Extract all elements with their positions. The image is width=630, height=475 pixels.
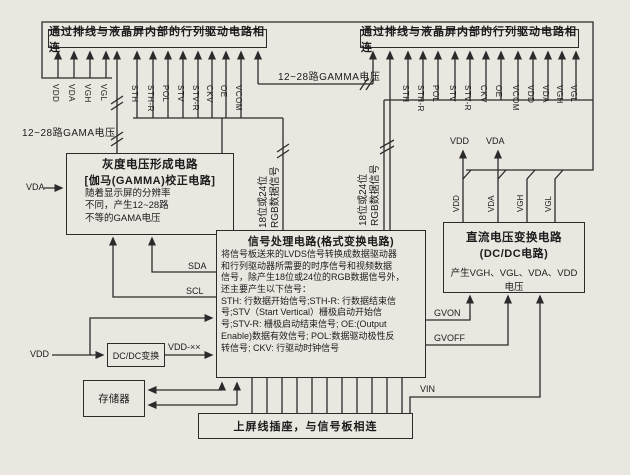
- dcdc-block: 直流电压变换电路 (DC/DC电路) 产生VGH、VGL、VDA、VDD电压: [443, 222, 585, 293]
- pin-label-stv: STV: [448, 85, 457, 102]
- dcdc-subtitle: (DC/DC电路): [448, 245, 580, 261]
- vdd-input-label: VDD: [30, 349, 49, 359]
- pin-label-vgh: VGH: [83, 84, 92, 103]
- pin-label-oe: OE: [219, 85, 228, 98]
- memory-block: 存储器: [83, 380, 145, 417]
- net-panel-socket: [252, 378, 402, 413]
- vdd-xx-label: VDD-××: [168, 342, 201, 352]
- vdd-branch-label: VDD: [450, 136, 469, 146]
- pin-label-sth: STH: [401, 85, 410, 103]
- pin-label-vcom: VCOM: [511, 85, 520, 111]
- pin-label-ckv: CKV: [479, 85, 488, 103]
- vin-label: VIN: [420, 384, 435, 394]
- pin-label-vdd: VDD: [526, 85, 535, 103]
- dcdc-out-label-vda: VDA: [487, 196, 496, 212]
- pin-label-vgl: VGL: [569, 85, 578, 103]
- gamma-voltage-block: 灰度电压形成电路 [伽马(GAMMA)校正电路] 随着显示屏的分辨率 不同，产生…: [66, 153, 234, 235]
- dcdc-out-label-vdd: VDD: [452, 195, 461, 212]
- dcdc-small-label: DC/DC变换: [113, 349, 160, 362]
- signal-body-line: 号;STV-R: 栅极启动结束信号; OE:(Output: [221, 319, 421, 331]
- pin-label-ckv: CKV: [205, 85, 214, 103]
- pin-label-vdd: VDD: [51, 84, 60, 102]
- gamma-body-line: 不等的GAMA电压: [85, 213, 229, 225]
- connector-top-right: 通过排线与液晶屏内部的行列驱动电路相连: [360, 29, 579, 48]
- gamma-title: 灰度电压形成电路: [71, 156, 229, 172]
- rgb-bus-label-right: 18位或24位 RGB数据信号: [358, 164, 382, 226]
- net-memory: [149, 383, 237, 405]
- scl-label: SCL: [186, 286, 204, 296]
- signal-body-line: 号;STV（Start Vertical）栅极启动开始信: [221, 307, 421, 319]
- signal-processing-block: 信号处理电路(格式变换电路) 将信号板送来的LVDS信号转换成数据驱动器 和行列…: [216, 230, 426, 378]
- pin-label-vda: VDA: [67, 84, 76, 102]
- pin-label-sth-r: STH-R: [146, 85, 155, 112]
- signal-body-line: 转信号; CKV: 行驱动时钟信号: [221, 343, 421, 355]
- dcdc-body: 产生VGH、VGL、VDA、VDD电压: [448, 265, 580, 293]
- dcdc-out-label-vgl: VGL: [544, 196, 553, 212]
- lcd-driver-board-block-diagram: 通过排线与液晶屏内部的行列驱动电路相连 通过排线与液晶屏内部的行列驱动电路相连 …: [0, 0, 630, 475]
- memory-label: 存储器: [98, 391, 130, 406]
- gamma-subtitle: [伽马(GAMMA)校正电路]: [71, 172, 229, 188]
- pin-label-vcom: VCOM: [234, 85, 243, 111]
- signal-title: 信号处理电路(格式变换电路): [221, 233, 421, 249]
- vda-input-label: VDA: [26, 182, 45, 192]
- gamma-body-line: 随着显示屏的分辨率: [85, 188, 229, 200]
- gamma-bus-top-label: 12~28路GAMMA电压: [278, 68, 380, 83]
- dcdc-converter-small-block: DC/DC变换: [107, 343, 165, 367]
- pin-label-pol: POL: [431, 85, 440, 103]
- gamma-bus-left-label: 12~28路GAMA电压: [22, 124, 116, 139]
- connector-bottom-label: 上屏线插座，与信号板相连: [234, 418, 378, 434]
- connector-top-left-label: 通过排线与液晶屏内部的行列驱动电路相连: [49, 23, 266, 55]
- signal-body-line: 还主要产生以下信号：: [221, 284, 421, 296]
- pin-label-sth-r: STH-R: [416, 85, 425, 112]
- pin-label-vda: VDA: [541, 85, 550, 103]
- pin-label-stv-r: STV-R: [463, 85, 472, 111]
- pin-label-sth: STH: [130, 85, 139, 103]
- signal-body-line: STH: 行数据开始信号;STH-R: 行数据结束信: [221, 296, 421, 308]
- net-gvon-gvoff-vin: [410, 296, 540, 413]
- pin-label-stv-r: STV-R: [191, 85, 200, 111]
- signal-body-line: 和行列驱动器所需要的时序信号和视频数据: [221, 261, 421, 273]
- sda-label: SDA: [188, 261, 207, 271]
- signal-body-line: Enable)数据有效信号; POL:数据驱动极性反: [221, 331, 421, 343]
- gvoff-label: GVOFF: [434, 333, 465, 343]
- pin-label-pol: POL: [161, 85, 170, 103]
- pin-label-stv: STV: [176, 85, 185, 102]
- vda-branch-label: VDA: [486, 136, 505, 146]
- dcdc-title: 直流电压变换电路: [448, 229, 580, 245]
- pin-label-oe: OE: [494, 85, 503, 98]
- rgb-bus-label-left: 18位或24位 RGB数据信号: [258, 166, 282, 228]
- connector-bottom-socket: 上屏线插座，与信号板相连: [198, 413, 413, 439]
- signal-body-line: 将信号板送来的LVDS信号转换成数据驱动器: [221, 249, 421, 261]
- gvon-label: GVON: [434, 308, 461, 318]
- connector-top-left: 通过排线与液晶屏内部的行列驱动电路相连: [48, 29, 267, 48]
- dcdc-out-label-vgh: VGH: [516, 195, 525, 212]
- signal-body-line: 信号，除产生18位或24位的RGB数据信号外，: [221, 272, 421, 284]
- pin-label-vgh: VGH: [555, 85, 564, 104]
- gamma-body-line: 不同，产生12~28路: [85, 200, 229, 212]
- connector-top-right-label: 通过排线与液晶屏内部的行列驱动电路相连: [361, 23, 578, 55]
- pin-label-vgl: VGL: [99, 84, 108, 102]
